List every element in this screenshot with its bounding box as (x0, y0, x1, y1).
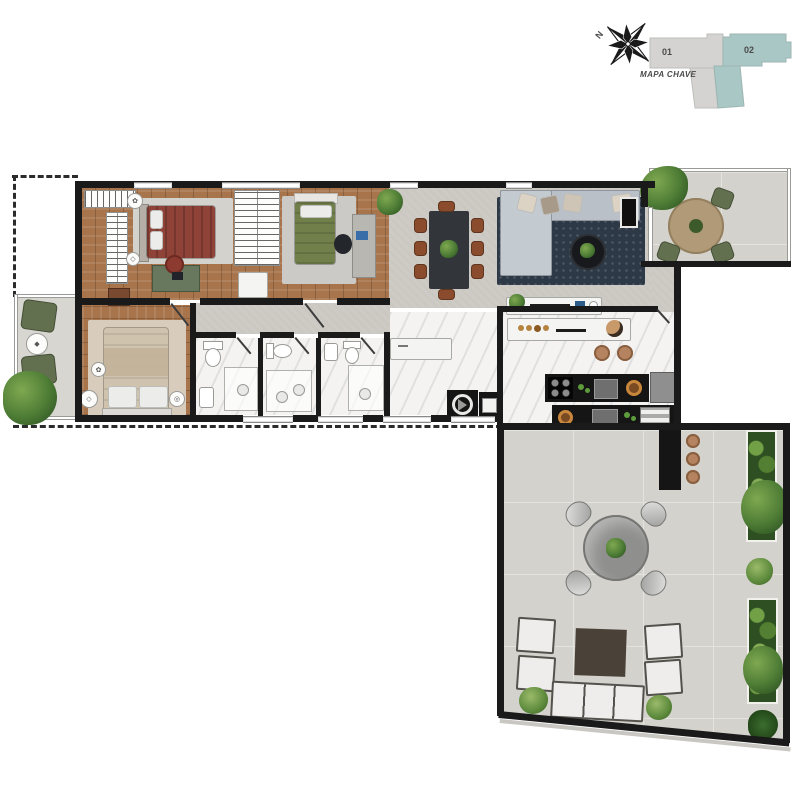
bar-decor-icon (526, 325, 532, 331)
laundry-counter-icon (390, 338, 452, 360)
bed-blanket (104, 348, 168, 376)
key-map-unit-01-label: 01 (662, 47, 672, 57)
nightstand-decor-icon: ◇ (126, 252, 140, 266)
table-center-plant-icon (689, 219, 703, 233)
herb-pot-icon (624, 412, 630, 418)
balcony-armchair-icon (20, 299, 58, 333)
floor-plan-image: N 01 02 MAPA CHAVE ◆ ✿ ◇ (0, 0, 800, 800)
dining-chair-icon (414, 264, 427, 279)
wall-terrace-top (497, 423, 790, 430)
key-map-title: MAPA CHAVE (640, 70, 696, 79)
wardrobe-rack-icon (234, 190, 280, 266)
shower-icon (266, 370, 312, 412)
wall-mid (75, 298, 170, 305)
terrace-bar-counter-icon (659, 428, 681, 490)
tank-sink-icon (482, 398, 497, 413)
laptop-icon (356, 231, 368, 240)
pillow-icon (150, 210, 163, 229)
pillow-icon (108, 386, 137, 408)
kitchen-stool-icon (594, 345, 610, 361)
wall-corridor-bath (318, 332, 360, 338)
pan-icon (626, 380, 642, 396)
study-desk-icon (352, 214, 376, 278)
dining-chair-icon (414, 218, 427, 233)
wall-kitchen-left (497, 306, 503, 430)
pillow-icon (139, 386, 168, 408)
wall-hall-kitchen (500, 306, 658, 312)
cooktop-icon (548, 377, 573, 399)
window (222, 182, 300, 189)
window (390, 182, 418, 189)
wall-terrace-left (497, 423, 504, 716)
sink-icon (324, 343, 338, 361)
window (134, 182, 172, 189)
wall-bottom (293, 415, 318, 422)
nightstand-decor-icon: ✿ (91, 362, 106, 377)
outdoor-armchair-icon (516, 617, 556, 655)
pillow-icon (300, 205, 332, 218)
bar-stool-icon (686, 452, 700, 466)
bar-decor-icon (543, 325, 549, 331)
wall-bath-divider (258, 338, 263, 417)
wall-bottom (75, 415, 243, 422)
nightstand-decor-icon: ✿ (127, 193, 143, 209)
window (318, 416, 363, 423)
closet-rack-icon (106, 212, 128, 284)
herb-pot-icon (585, 388, 590, 393)
bar-stool-icon (686, 434, 700, 448)
balcony-rail-top (14, 294, 76, 298)
shower-drain (237, 384, 249, 396)
toilet-bowl (205, 348, 221, 367)
window (451, 416, 495, 423)
bar-statue-icon (606, 320, 623, 337)
sofa-pillow-icon (539, 194, 560, 215)
dining-chair-icon (438, 201, 455, 212)
balcony-side-table-icon: ◆ (26, 333, 48, 355)
dining-chair-icon (471, 264, 484, 279)
dining-chair-icon (414, 241, 427, 256)
window (243, 416, 293, 423)
bar-board-icon (556, 329, 586, 332)
pillow-icon (150, 231, 163, 250)
office-chair-icon (334, 234, 352, 254)
pouf-icon (238, 272, 268, 298)
window (383, 416, 431, 423)
boundary-dash-bottom (13, 425, 502, 428)
wall-bath-divider (316, 338, 321, 417)
boundary-dash-top (12, 175, 78, 178)
bar-decor-icon (518, 325, 524, 331)
wall-bottom (431, 415, 451, 422)
key-map-unit-02-terrace-shape (714, 66, 744, 108)
terrace-north-rail-right (787, 168, 791, 267)
outdoor-sofa-icon (550, 681, 645, 723)
sofa-pillow-icon (562, 193, 583, 213)
key-map-unit-02-label: 02 (744, 45, 754, 55)
dining-chair-icon (471, 218, 484, 233)
outdoor-armchair-icon (644, 623, 683, 660)
wall-terrace-right (783, 425, 790, 743)
toilet-bowl (345, 347, 359, 364)
wall-bottom (495, 415, 503, 422)
wall-right (674, 263, 681, 430)
nightstand-decor-icon: ◇ (80, 390, 98, 408)
outdoor-armchair-icon (644, 659, 683, 696)
window (506, 182, 532, 189)
herb-pot-icon (578, 384, 584, 390)
glass-divider (648, 207, 653, 263)
key-map-unit-02-shape (723, 34, 791, 66)
shower-drain (293, 384, 305, 396)
wall-corridor-bath (196, 332, 236, 338)
fridge-icon (650, 372, 676, 403)
sink-icon (199, 387, 214, 408)
wall-laundry-left (384, 332, 390, 417)
washer-door-glass (458, 399, 467, 411)
bar-stool-icon (686, 470, 700, 484)
dining-chair-icon (438, 289, 455, 300)
wall-mid (337, 298, 390, 305)
wall-suite2-right (190, 303, 196, 422)
wall-corridor-bath (260, 332, 294, 338)
bar-decor-icon (534, 325, 541, 332)
palm-plant-icon (741, 480, 787, 534)
palm-plant-icon (743, 646, 783, 694)
shower-drain (276, 391, 288, 403)
key-map (635, 22, 800, 114)
boundary-dash-left (13, 175, 16, 297)
tv-icon (620, 197, 638, 228)
shower-drain (359, 388, 371, 400)
outdoor-coffee-table-icon (574, 628, 627, 677)
toilet-bowl (273, 344, 292, 358)
dining-chair-icon (471, 241, 484, 256)
key-map-unit-01-shape (650, 34, 723, 68)
wall-mid (200, 298, 303, 305)
faucet-icon (398, 345, 408, 347)
wall-terrace-north-bottom (641, 261, 791, 267)
nightstand-decor-icon: ◎ (169, 391, 185, 407)
herb-pot-icon (631, 416, 636, 421)
kitchen-stool-icon (617, 345, 633, 361)
wall-bottom (363, 415, 383, 422)
laptop-icon (172, 272, 183, 280)
wall-living-corner (641, 181, 648, 207)
kitchen-sink-icon (594, 379, 618, 399)
corridor-floor (196, 303, 390, 334)
